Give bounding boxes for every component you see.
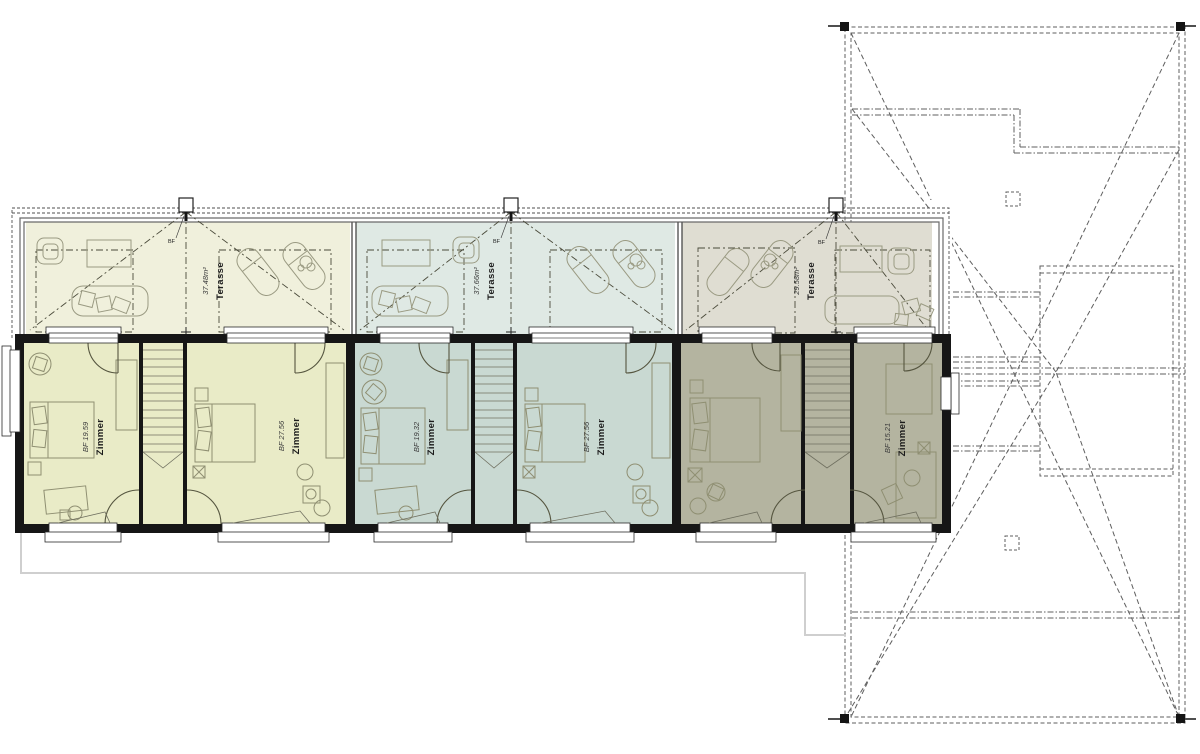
window-left-wall: [2, 346, 20, 436]
unit-1-room-left-area: BF 19.59: [81, 421, 90, 452]
unit-3-room-right-label: Zimmer: [897, 420, 908, 457]
roof-connection-lines: [953, 292, 1040, 451]
terrace-band: BF BF BF: [12, 198, 952, 338]
unit-1-room-right-label: Zimmer: [291, 418, 302, 455]
window-right-wall: [941, 373, 959, 414]
unit-1-room-right-area: BF 27.56: [277, 420, 286, 451]
unit-2-room-right: [517, 343, 672, 524]
terrace-3-label: Terasse: [806, 262, 817, 300]
terrace-3-area: 29.58m²: [792, 267, 801, 296]
roof-step-line: [852, 109, 1179, 153]
unit-3-room-left: [681, 343, 801, 524]
unit-2-room-left-label: Zimmer: [426, 419, 437, 456]
terrace-unit-2: [356, 222, 675, 334]
roof-vent: [1006, 192, 1020, 206]
unit-2-room-left-area: BF 19.32: [412, 421, 421, 452]
bf-marker-3: BF: [818, 240, 826, 246]
terrace-1-label: Terasse: [215, 262, 226, 300]
roof-vent: [1005, 536, 1019, 550]
unit-2-room-right-area: BF 27.56: [582, 421, 591, 452]
bf-marker-1: BF: [168, 239, 176, 245]
terrace-2-label: Terasse: [486, 262, 497, 300]
bf-marker-2: BF: [493, 239, 501, 245]
unit-2-stairwell: [475, 343, 513, 524]
ground-floor-outline: [21, 533, 846, 635]
unit-1-stairwell: [143, 343, 183, 524]
floor-plan-canvas: BF BF BF: [0, 0, 1200, 754]
unit-2-room-right-label: Zimmer: [596, 419, 607, 456]
unit-3-stairwell: [805, 343, 850, 524]
terrace-2-area: 37.66m²: [472, 267, 481, 295]
terrace-1-area: 37.48m²: [201, 267, 210, 295]
unit-1-room-left-label: Zimmer: [95, 419, 106, 456]
unit-3-room-right-area: BF 15.21: [883, 423, 892, 453]
floor-plan-drawing: BF BF BF: [0, 0, 1200, 754]
terrace-unit-1: [26, 222, 350, 334]
rooms-band: BF 19.59 Zimmer BF 27.56 Zimmer BF 19.32…: [2, 327, 959, 542]
roof-dormer-outline: [1040, 266, 1173, 476]
